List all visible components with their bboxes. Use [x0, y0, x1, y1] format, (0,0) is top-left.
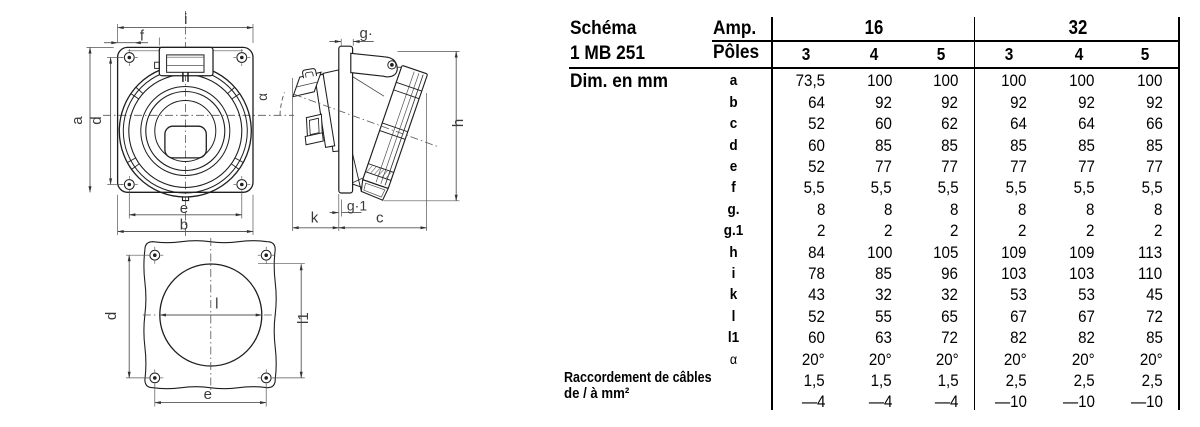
svg-text:l1: l1: [295, 312, 312, 324]
svg-text:k: k: [311, 209, 319, 226]
svg-text:l: l: [215, 295, 218, 312]
svg-text:α: α: [255, 93, 270, 101]
svg-text:e: e: [204, 386, 212, 403]
svg-text:d: d: [88, 116, 105, 124]
svg-text:f: f: [140, 28, 145, 45]
svg-text:g·1: g·1: [347, 198, 367, 214]
svg-text:c: c: [376, 209, 384, 226]
svg-text:d: d: [103, 312, 120, 320]
svg-text:b: b: [180, 216, 188, 233]
svg-text:g·: g·: [360, 25, 373, 42]
svg-text:i: i: [184, 11, 187, 28]
svg-text:e: e: [180, 200, 188, 217]
svg-text:h: h: [450, 119, 467, 127]
svg-text:a: a: [69, 116, 86, 125]
